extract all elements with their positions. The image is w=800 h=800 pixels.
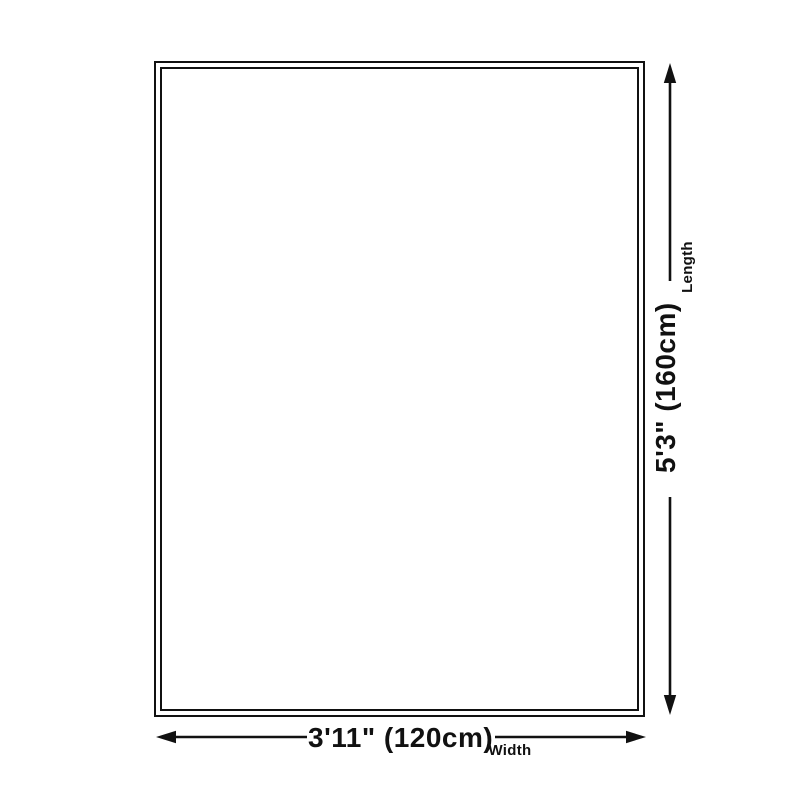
- length-dimension-label: Length: [680, 237, 696, 297]
- dimension-diagram: 5'3" (160cm) Length 3'11" (120cm) Width: [0, 0, 800, 800]
- length-arrow-down-icon: [664, 497, 676, 715]
- width-dimension-value: 3'11" (120cm): [308, 724, 492, 754]
- rug-rectangle-outer-border: [154, 61, 645, 717]
- width-arrow-left-icon: [156, 731, 307, 743]
- length-dimension-value: 5'3" (160cm): [652, 311, 682, 473]
- rug-rectangle-inner-border: [160, 67, 639, 711]
- width-dimension-label: Width: [486, 743, 534, 759]
- length-arrow-up-icon: [664, 63, 676, 281]
